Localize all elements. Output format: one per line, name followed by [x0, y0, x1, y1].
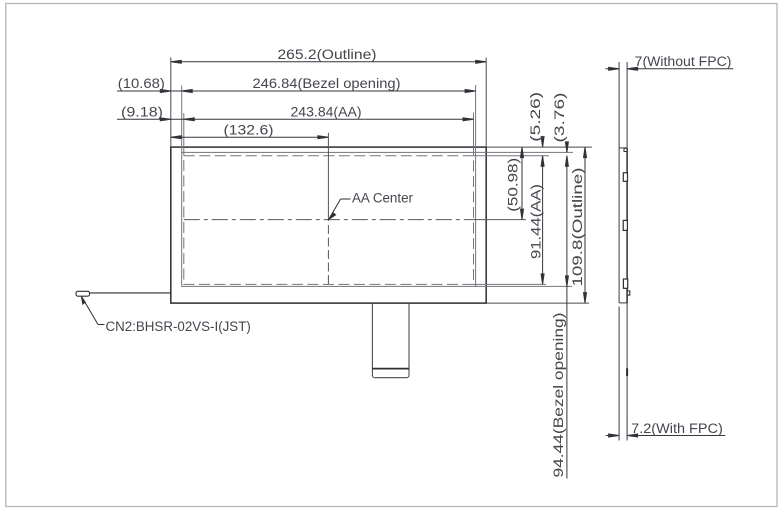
svg-text:(9.18): (9.18) [121, 105, 163, 120]
svg-text:CN2:BHSR-02VS-I(JST): CN2:BHSR-02VS-I(JST) [106, 319, 251, 334]
svg-text:7.2(With FPC): 7.2(With FPC) [631, 421, 723, 436]
svg-text:94.44(Bezel opening): 94.44(Bezel opening) [551, 313, 566, 478]
svg-text:(10.68): (10.68) [118, 76, 165, 91]
svg-text:(50.98): (50.98) [506, 158, 521, 212]
svg-text:265.2(Outline): 265.2(Outline) [278, 47, 377, 62]
svg-text:246.84(Bezel opening): 246.84(Bezel opening) [253, 76, 401, 91]
svg-text:109.8(Outline): 109.8(Outline) [570, 168, 585, 287]
svg-text:(3.76): (3.76) [552, 93, 567, 143]
svg-text:AA Center: AA Center [352, 190, 413, 205]
svg-text:91.44(AA): 91.44(AA) [528, 184, 543, 259]
svg-text:243.84(AA): 243.84(AA) [291, 105, 362, 120]
svg-text:(132.6): (132.6) [224, 122, 274, 137]
svg-text:7(Without FPC): 7(Without FPC) [635, 54, 732, 69]
svg-text:(5.26): (5.26) [528, 92, 543, 142]
